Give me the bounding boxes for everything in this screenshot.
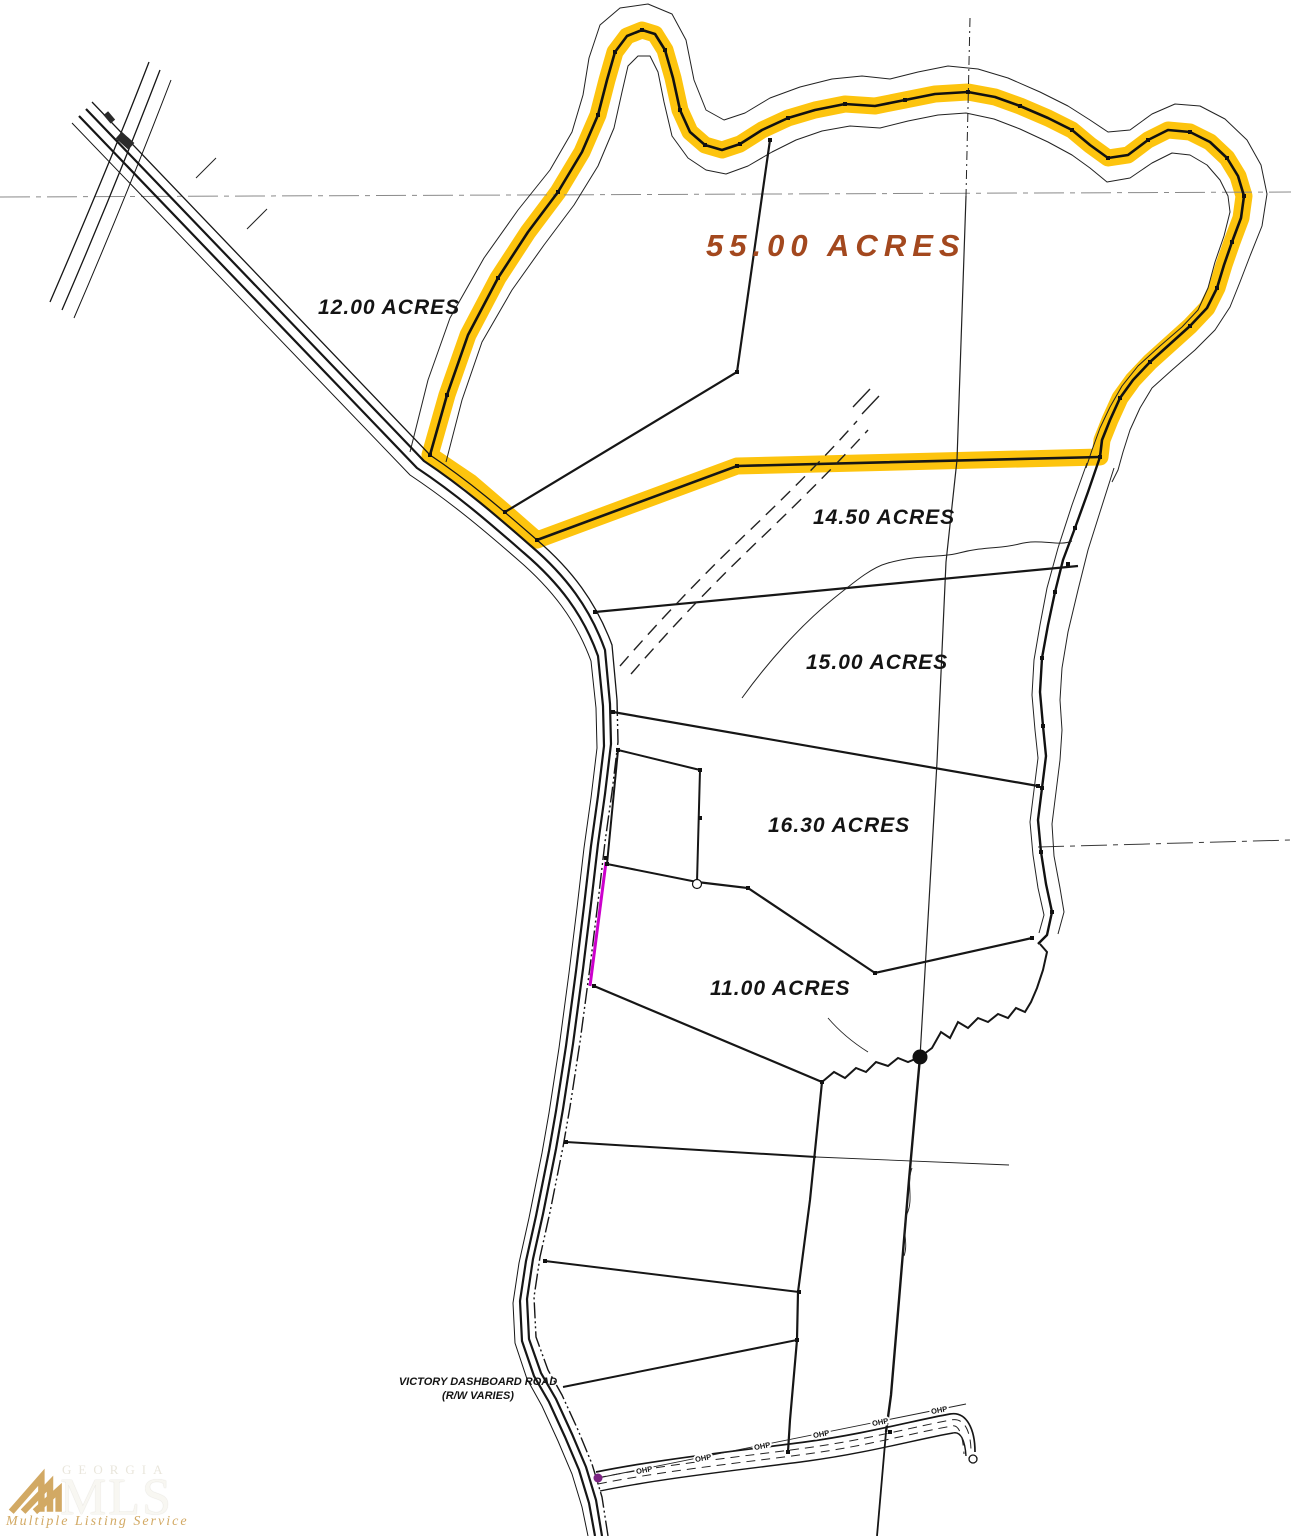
road-west-edge — [72, 123, 597, 1536]
illegible-survey-note-1 — [116, 132, 135, 150]
match-line-right — [1038, 840, 1291, 847]
plat-linework: OHP OHP OHP OHP OHP OHP — [0, 0, 1291, 1536]
intersection-tick-1 — [196, 158, 216, 178]
parcel-label-15: 15.00 ACRES — [806, 651, 948, 675]
large-monument-dot — [913, 1050, 928, 1065]
road-east-edge-lower-boundary — [534, 700, 618, 1536]
bottom-road-dashed-center-2 — [598, 1426, 964, 1484]
east-branch-bank-west — [1030, 463, 1087, 933]
small-parcel-quad — [607, 750, 700, 882]
logo-tagline-text: Multiple Listing Service — [6, 1514, 189, 1530]
boundary-16-3-south — [697, 882, 1032, 973]
ohp-label: OHP — [753, 1440, 771, 1452]
parcel-label-12: 12.00 ACRES — [318, 296, 460, 320]
boundary-lower-c — [563, 1340, 797, 1387]
georgia-mls-logo: GEORGIA MLS Multiple Listing Service — [6, 1456, 196, 1534]
road-name-line1: VICTORY DASHBOARD ROAD — [398, 1376, 558, 1390]
east-branch-centerline — [1038, 457, 1100, 944]
interior-survey-line-thin — [920, 196, 966, 1057]
interior-survey-line-heavy — [886, 1057, 920, 1432]
quad-corner-monument — [693, 880, 702, 889]
parcel-label-55: 55.00 ACRES — [706, 228, 966, 264]
road-name-label: VICTORY DASHBOARD ROAD (R/W VARIES) — [398, 1376, 558, 1404]
intersection-branch-curve-2 — [50, 62, 149, 302]
illegible-survey-note-2 — [103, 111, 115, 123]
dashed-drive-stub-1 — [853, 389, 870, 407]
dashed-drive-stub-2 — [862, 396, 879, 414]
intersection-branch-curve-3 — [74, 80, 171, 318]
power-pole-marker — [594, 1474, 603, 1483]
boundary-15-16-3 — [613, 712, 1038, 786]
intersection-tick-2 — [247, 209, 267, 229]
parcel-label-16-3: 16.30 ACRES — [768, 814, 910, 838]
magenta-frontage-line — [590, 862, 606, 986]
match-line-horizontal — [0, 192, 1291, 197]
bottom-road-dashed-center-1 — [597, 1420, 971, 1478]
ohp-label: OHP — [694, 1452, 712, 1464]
intersection-branch-curve-1 — [62, 70, 160, 310]
parcel-label-11: 11.00 ACRES — [710, 977, 851, 1001]
road-east-edge-upper — [92, 102, 617, 700]
road-centerline-1 — [86, 109, 611, 1536]
branch-squiggle-west — [822, 1057, 920, 1082]
branch-squiggle-east — [920, 944, 1047, 1057]
road-name-line2: (R/W VARIES) — [398, 1390, 558, 1404]
ohp-label: OHP — [635, 1464, 653, 1476]
section-line-dashed-top — [966, 18, 970, 196]
mls-logo-mark — [8, 1460, 64, 1516]
parcel-label-14-5: 14.50 ACRES — [813, 506, 955, 530]
road-end-marker — [969, 1455, 977, 1463]
boundary-lower-a-ext — [816, 1157, 1009, 1165]
ohp-labels: OHP OHP OHP OHP OHP OHP — [635, 1404, 948, 1476]
survey-plat-map: OHP OHP OHP OHP OHP OHP 55.00 ACRES 12.0… — [0, 0, 1291, 1536]
boundary-14-5-15 — [595, 566, 1078, 612]
boundary-lower-vertical — [788, 1082, 822, 1452]
road-centerline-2 — [79, 116, 604, 1536]
boundary-lower-a — [566, 1142, 816, 1157]
boundary-lower-b — [545, 1261, 799, 1292]
thin-drain-arc — [828, 1018, 868, 1052]
